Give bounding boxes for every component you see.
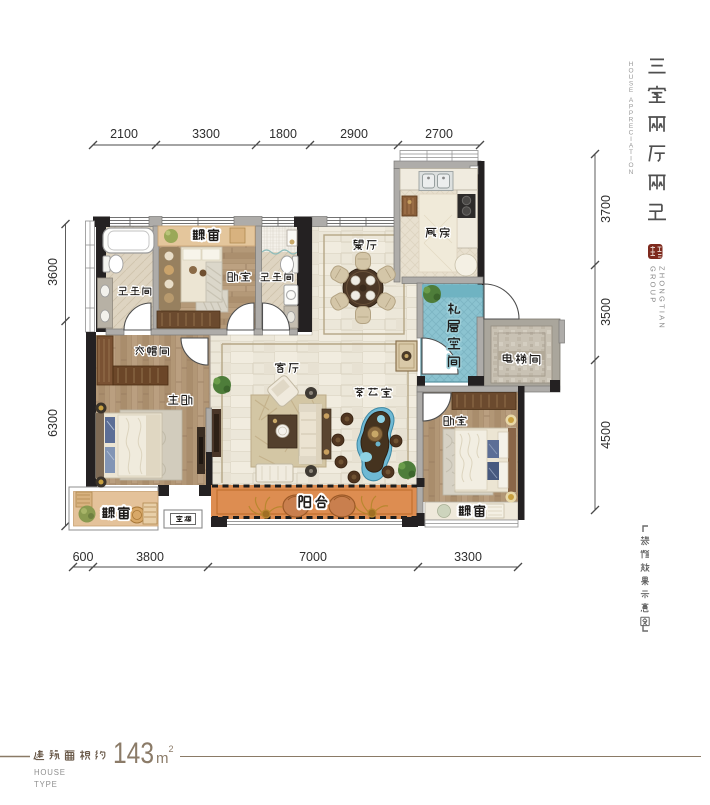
svg-text:3500: 3500 bbox=[599, 298, 613, 326]
svg-text:2900: 2900 bbox=[340, 127, 368, 141]
svg-text:4500: 4500 bbox=[599, 421, 613, 449]
svg-text:2700: 2700 bbox=[425, 127, 453, 141]
svg-text:3600: 3600 bbox=[46, 258, 60, 286]
svg-text:ZHONGTIAN: ZHONGTIAN bbox=[658, 266, 667, 330]
svg-text:143: 143 bbox=[113, 737, 154, 770]
svg-text:6300: 6300 bbox=[46, 409, 60, 437]
svg-text:7000: 7000 bbox=[299, 550, 327, 564]
svg-text:TYPE: TYPE bbox=[34, 780, 58, 789]
svg-text:3700: 3700 bbox=[599, 195, 613, 223]
svg-text:3800: 3800 bbox=[136, 550, 164, 564]
svg-text:3300: 3300 bbox=[454, 550, 482, 564]
svg-text:600: 600 bbox=[73, 550, 94, 564]
svg-text:2100: 2100 bbox=[110, 127, 138, 141]
svg-text:1800: 1800 bbox=[269, 127, 297, 141]
svg-text:3300: 3300 bbox=[192, 127, 220, 141]
svg-text:GROUP: GROUP bbox=[649, 266, 658, 305]
svg-text:2: 2 bbox=[169, 744, 174, 754]
svg-text:m: m bbox=[156, 750, 169, 767]
svg-text:HOUSE: HOUSE bbox=[34, 768, 66, 777]
